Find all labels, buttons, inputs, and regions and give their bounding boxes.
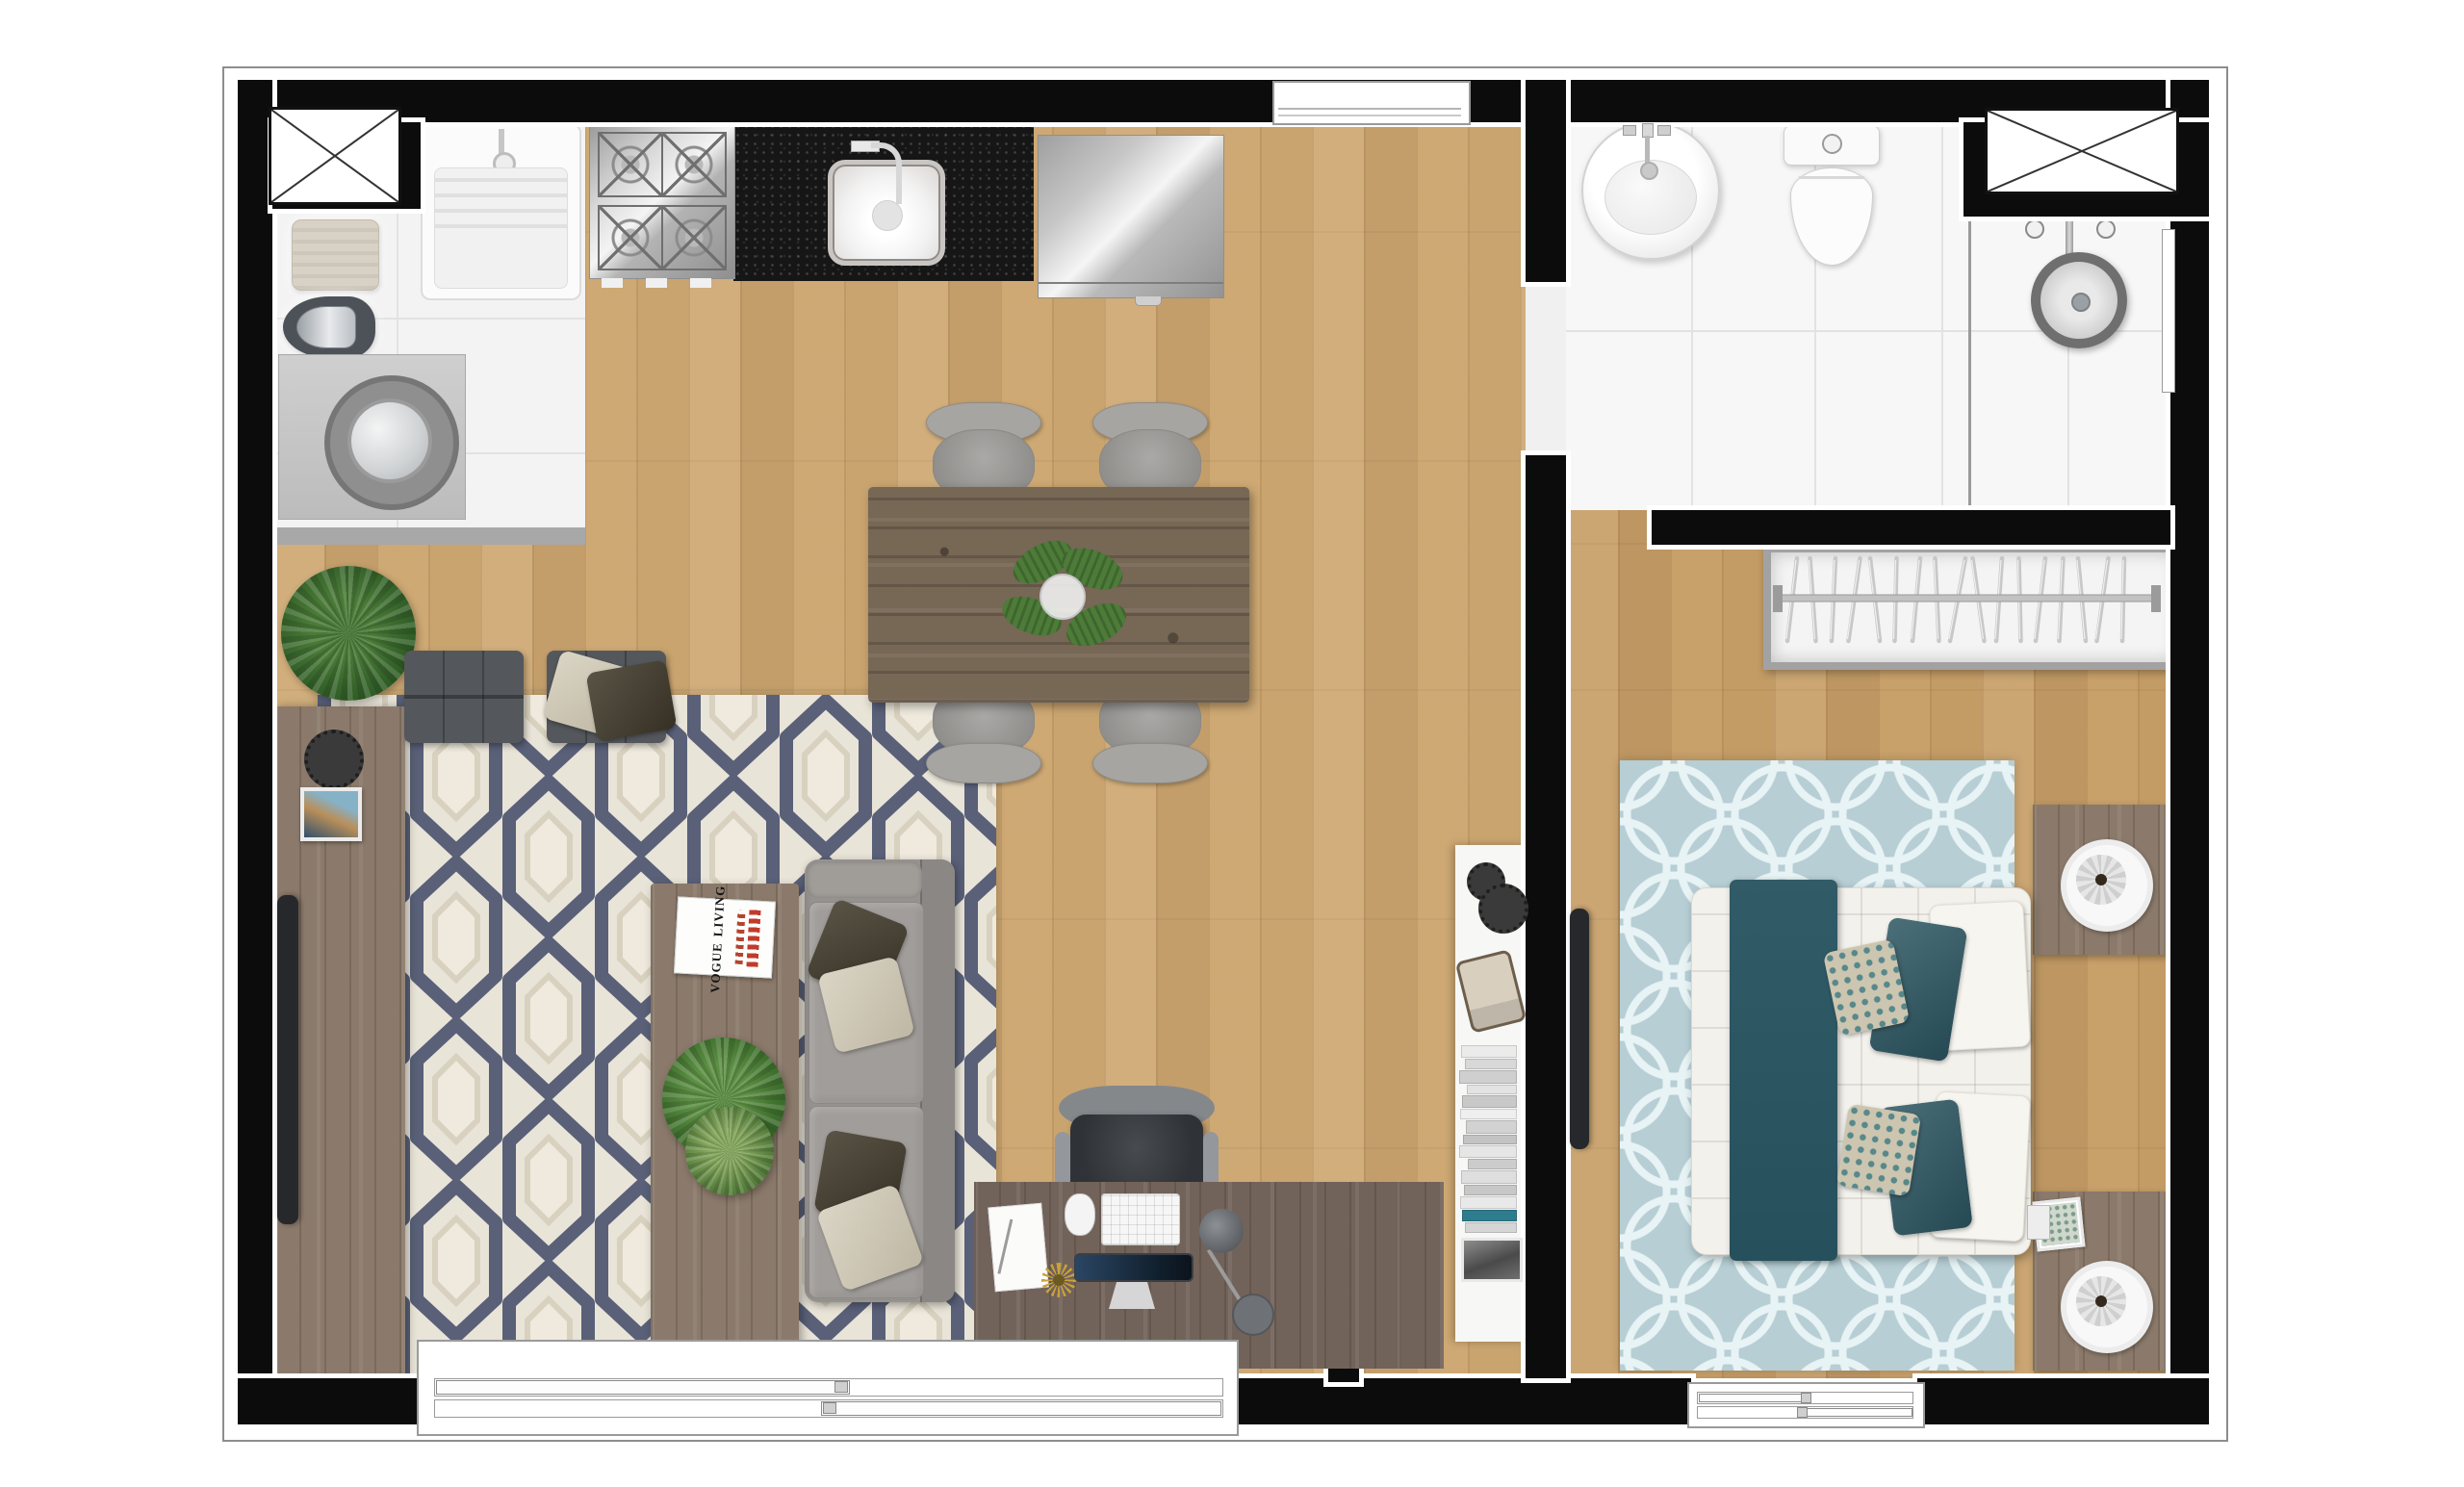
towel-basket [292, 219, 379, 291]
bedroom-window-handle [1797, 1407, 1808, 1418]
bath-grout-line [1941, 122, 1943, 510]
keyboard [1101, 1193, 1180, 1245]
utility-sink [421, 123, 581, 300]
gas-stove [589, 123, 735, 279]
wall-divider-living-bedroom [1526, 455, 1566, 1378]
ventilation-shaft-top-right [1985, 108, 2179, 194]
wall-bathroom-bedroom [1652, 510, 2170, 545]
rug-hexagon-inner [527, 1138, 570, 1222]
table-lamp-bottom-finial [2095, 1295, 2107, 1307]
laundry-threshold [272, 527, 585, 545]
sofa-armrest-top [807, 861, 922, 898]
balcony-door-handle [823, 1402, 836, 1414]
stacked-book [1464, 1185, 1517, 1195]
rug-hexagon-inner [435, 895, 477, 980]
utility-sink-tap [499, 129, 504, 154]
rug-hexagon-inner [435, 1057, 477, 1141]
desk-lamp-base [1232, 1294, 1274, 1336]
bedroom-door-opening [1566, 510, 1652, 545]
washing-machine [278, 354, 466, 520]
stacked-book [1459, 1145, 1517, 1158]
stove-burner [661, 205, 727, 270]
dining-chair-back [926, 743, 1041, 783]
wall-bottom-middle [1235, 1378, 1691, 1424]
wall-left [238, 80, 272, 1424]
shower-glass-door [2162, 229, 2175, 393]
stove-burner [598, 132, 663, 197]
stacked-book [1466, 1120, 1517, 1134]
rug-hexagon-inner [527, 814, 570, 899]
rug-hexagon-inner [527, 976, 570, 1061]
wall-bathroom-left [1526, 80, 1566, 282]
ironing-board [283, 296, 375, 358]
living-potted-plant [281, 566, 416, 701]
fridge-door-seam [1039, 282, 1223, 284]
window-sill-line [1278, 115, 1461, 116]
stacked-book [1463, 1135, 1517, 1144]
bedroom-window-panel [1699, 1394, 1809, 1402]
shower-glass-partition [1968, 217, 1971, 510]
vogue-living-magazine: VOGUELIVING [674, 896, 776, 978]
teal-bed-runner [1730, 880, 1837, 1261]
rug-hexagon-inner [989, 895, 996, 980]
kitchen-window [1272, 81, 1471, 125]
nightstand-card [2027, 1205, 2050, 1240]
rug-hexagon-inner [435, 733, 477, 818]
stove-burner [598, 205, 663, 270]
wall-bottom-left [238, 1378, 421, 1424]
notepad [988, 1203, 1048, 1293]
rug-hexagon-inner [712, 695, 755, 737]
rug-hexagon-inner [435, 1218, 477, 1303]
fridge-hinge [1135, 296, 1162, 306]
stacked-book [1467, 1085, 1517, 1094]
photo-frame [300, 787, 362, 841]
bedroom-wall-tv [1570, 909, 1589, 1149]
bathroom-door-floor [1526, 282, 1566, 455]
washer-door-glass [347, 398, 432, 483]
mouse [1065, 1193, 1095, 1236]
living-wall-tv [277, 895, 298, 1224]
basin-faucet [1657, 125, 1671, 136]
pen-cup [1041, 1263, 1076, 1297]
bedroom-window-panel [1803, 1408, 1912, 1417]
stacked-book [1462, 1095, 1517, 1108]
stacked-book [1459, 1070, 1517, 1084]
wardrobe-rod-cap [1773, 585, 1783, 612]
wardrobe-hangers-svg [1771, 552, 2163, 647]
stove-burner [661, 132, 727, 197]
bed-pillow-patterned [1836, 1104, 1922, 1197]
stove-knobs [590, 278, 734, 288]
bedroom-window-handle [1801, 1393, 1811, 1403]
balcony-door-handle [834, 1381, 848, 1393]
stacked-photo-book [1461, 1238, 1523, 1282]
table-lamp-top-finial [2095, 874, 2107, 885]
sofa-backrest [920, 859, 955, 1302]
utility-sink-washboard [434, 167, 568, 289]
decor-plate [304, 730, 364, 789]
magazine-red-column [746, 909, 760, 967]
desk-lamp-head [1199, 1209, 1244, 1253]
monitor [1074, 1253, 1193, 1282]
basin-faucet [1623, 125, 1636, 136]
wardrobe [1763, 545, 2186, 670]
stacked-book [1468, 1159, 1517, 1169]
magazine-red-column [735, 910, 746, 964]
stacked-book [1465, 1059, 1517, 1069]
wall-bottom-right [1917, 1378, 2209, 1424]
wall-right [2170, 80, 2209, 1424]
ventilation-shaft-top-left [269, 107, 401, 205]
centerpiece-glass-dish [1039, 574, 1086, 620]
wall-top [238, 80, 2209, 122]
wardrobe-rod [1779, 595, 2155, 602]
stacked-book [1465, 1222, 1517, 1233]
faucet-spout [871, 142, 902, 204]
living-balcony-sliding-door [417, 1340, 1239, 1436]
shelf-book-stack [1459, 1045, 1523, 1297]
sink-drain [872, 200, 903, 231]
coffee-table-succulent [685, 1107, 774, 1195]
rug-hexagon-inner [989, 1057, 996, 1141]
stacked-book [1461, 1170, 1517, 1184]
ottoman [404, 651, 524, 743]
balcony-door-panel [821, 1401, 1221, 1416]
clothes-iron [296, 306, 356, 348]
shelf-decor-plate [1478, 884, 1528, 934]
shower-head [2031, 252, 2127, 348]
refrigerator [1038, 135, 1224, 298]
shower-valve [2096, 219, 2116, 239]
shower-valve [2025, 219, 2044, 239]
stacked-book [1461, 1045, 1517, 1058]
rug-hexagon-inner [620, 733, 662, 818]
bathroom-round-basin [1581, 121, 1720, 260]
balcony-door-panel [436, 1380, 850, 1395]
rug-hexagon-inner [805, 733, 847, 818]
window-sill-line [1278, 108, 1461, 110]
bedroom-window [1687, 1382, 1925, 1428]
wardrobe-rod-cap [2151, 585, 2161, 612]
ottoman-pillow-brown [585, 659, 677, 741]
dining-chair-back [1092, 743, 1208, 783]
stacked-book [1462, 1210, 1517, 1221]
stacked-book [1460, 1196, 1517, 1209]
washer-door [324, 375, 459, 510]
basin-faucet-stem [1645, 136, 1650, 163]
stacked-book [1460, 1109, 1517, 1119]
basin-drain [1640, 162, 1658, 180]
toilet-flush-button [1822, 134, 1842, 154]
